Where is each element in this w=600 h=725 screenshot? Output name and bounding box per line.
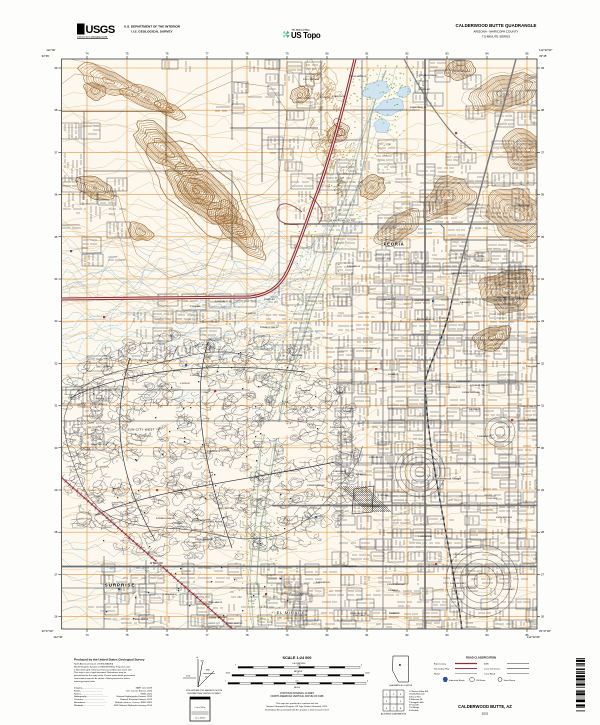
svg-text:84: 84 bbox=[485, 633, 489, 637]
svg-text:W SWEETWATER AVE: W SWEETWATER AVE bbox=[139, 359, 157, 362]
svg-text:W BELL RD: W BELL RD bbox=[150, 562, 163, 565]
svg-text:81: 81 bbox=[365, 52, 369, 56]
svg-text:112°22'30": 112°22'30" bbox=[527, 635, 540, 639]
svg-text:N 134TH DR: N 134TH DR bbox=[521, 474, 531, 476]
svg-text:Roads.........................: Roads...................................… bbox=[74, 690, 103, 692]
svg-text:This map was produced to confo: This map was produced to conform with th… bbox=[276, 702, 319, 705]
svg-text:74: 74 bbox=[85, 633, 89, 637]
svg-text:78: 78 bbox=[245, 52, 249, 56]
svg-text:W HILLCREST BLVD: W HILLCREST BLVD bbox=[451, 273, 468, 275]
svg-text:112°30': 112°30' bbox=[46, 48, 56, 52]
svg-text:W GREENWAY RD: W GREENWAY RD bbox=[446, 386, 461, 389]
svg-text:SCALE 1:24 000: SCALE 1:24 000 bbox=[283, 656, 312, 660]
svg-text:N 134TH DR: N 134TH DR bbox=[466, 588, 476, 590]
svg-text:W SWEETWATER AVE: W SWEETWATER AVE bbox=[209, 616, 227, 619]
svg-text:Ramp: Ramp bbox=[434, 674, 441, 676]
svg-text:W SHAW DR: W SHAW DR bbox=[388, 589, 399, 592]
svg-text:76: 76 bbox=[165, 52, 169, 56]
svg-text:QUADRANGLE LOCATION: QUADRANGLE LOCATION bbox=[389, 684, 413, 687]
svg-text:38: 38 bbox=[541, 108, 545, 112]
svg-text:36: 36 bbox=[54, 193, 58, 197]
svg-text:US Topo: US Topo bbox=[291, 31, 321, 40]
svg-text:1 000-meter grid: Universal Tr: 1 000-meter grid: Universal Transverse M… bbox=[74, 668, 132, 671]
svg-text:8 Glendale: 8 Glendale bbox=[409, 710, 420, 712]
svg-text:85: 85 bbox=[525, 52, 529, 56]
svg-text:ADJOINING QUADRANGLES: ADJOINING QUADRANGLES bbox=[381, 713, 407, 716]
svg-text:78: 78 bbox=[245, 633, 249, 637]
svg-text:W PEAK VIEW RD: W PEAK VIEW RD bbox=[456, 380, 471, 383]
svg-text:W WILLIAMS RD: W WILLIAMS RD bbox=[135, 618, 149, 621]
svg-text:USGS: USGS bbox=[86, 24, 115, 36]
svg-text:N 135TH AVE: N 135TH AVE bbox=[190, 305, 201, 308]
svg-text:science for a changing world: science for a changing world bbox=[77, 36, 108, 38]
svg-text:Local Road: Local Road bbox=[484, 674, 496, 676]
svg-text:79: 79 bbox=[285, 633, 289, 637]
svg-text:GNIS, 2021: GNIS, 2021 bbox=[141, 693, 153, 695]
svg-text:32: 32 bbox=[541, 361, 545, 365]
svg-text:N PARKVIEW LN: N PARKVIEW LN bbox=[332, 95, 346, 98]
svg-text:W SWEETWATER AVE: W SWEETWATER AVE bbox=[307, 484, 325, 487]
svg-text:W GREENWAY RD: W GREENWAY RD bbox=[342, 565, 357, 568]
svg-text:N PARKVIEW LN: N PARKVIEW LN bbox=[207, 450, 221, 453]
svg-text:Wetlands......................: Wetlands................................… bbox=[74, 704, 105, 707]
svg-text:FWS National Wetlands Inventor: FWS National Wetlands Inventory 2014 bbox=[114, 704, 153, 707]
svg-text:37: 37 bbox=[54, 150, 58, 154]
svg-text:83: 83 bbox=[445, 633, 449, 637]
svg-text:W MEEKER BLVD: W MEEKER BLVD bbox=[316, 582, 331, 584]
svg-text:Imagery.......................: Imagery.................................… bbox=[74, 687, 104, 690]
svg-text:31: 31 bbox=[54, 404, 58, 408]
svg-text:1 Pleasant Valley SW: 1 Pleasant Valley SW bbox=[409, 690, 428, 693]
svg-text:NORTH AMERICAN VERTICAL DATUM: NORTH AMERICAN VERTICAL DATUM OF 1988 bbox=[271, 695, 324, 698]
svg-text:7.5-MINUTE SERIES: 7.5-MINUTE SERIES bbox=[482, 35, 511, 39]
svg-text:NAIP, June 2019: NAIP, June 2019 bbox=[136, 687, 153, 690]
svg-text:75: 75 bbox=[125, 52, 129, 56]
svg-text:83: 83 bbox=[445, 52, 449, 56]
svg-text:W ROSE GARDEN LN: W ROSE GARDEN LN bbox=[363, 347, 381, 350]
svg-text:N 134TH DR: N 134TH DR bbox=[180, 383, 190, 385]
svg-text:W PINNACLE PEAK RD: W PINNACLE PEAK RD bbox=[156, 517, 175, 520]
svg-text:74: 74 bbox=[85, 52, 89, 56]
svg-text:N 134TH DR: N 134TH DR bbox=[190, 375, 200, 377]
svg-text:N 134TH DR: N 134TH DR bbox=[439, 318, 449, 320]
svg-text:W WILLIAMS RD: W WILLIAMS RD bbox=[497, 296, 511, 299]
svg-text:W PINNACLE PEAK RD: W PINNACLE PEAK RD bbox=[518, 405, 537, 408]
svg-text:Contours......................: Contours................................… bbox=[74, 698, 105, 701]
svg-text:Expressway: Expressway bbox=[434, 663, 447, 666]
svg-text:CALDERWOOD BUTTE, AZ: CALDERWOOD BUTTE, AZ bbox=[458, 704, 512, 709]
svg-text:entering private lands.: entering private lands. bbox=[74, 680, 96, 683]
svg-text:US Route: US Route bbox=[476, 679, 486, 682]
svg-text:U.S. DEPARTMENT OF THE INTERIO: U.S. DEPARTMENT OF THE INTERIOR bbox=[124, 24, 181, 28]
svg-text:ARIZONA - MARICOPA COUNTY: ARIZONA - MARICOPA COUNTY bbox=[474, 29, 519, 33]
svg-text:W CHOLLA ST: W CHOLLA ST bbox=[503, 588, 514, 591]
svg-text:U.S. Census Bureau, 2016: U.S. Census Bureau, 2016 bbox=[126, 689, 153, 692]
svg-text:29: 29 bbox=[54, 488, 58, 492]
svg-text:W PEAK VIEW RD: W PEAK VIEW RD bbox=[289, 594, 304, 597]
svg-text:30: 30 bbox=[54, 446, 58, 450]
svg-text:North American Datum of 1983 (: North American Datum of 1983 (NAD83) bbox=[74, 663, 113, 666]
svg-text:75: 75 bbox=[125, 633, 129, 637]
svg-text:2021: 2021 bbox=[482, 712, 489, 716]
svg-text:35: 35 bbox=[54, 235, 58, 239]
svg-text:W CHOLLA ST: W CHOLLA ST bbox=[264, 298, 275, 301]
svg-text:W ROSE GARDEN LN: W ROSE GARDEN LN bbox=[453, 553, 471, 556]
svg-text:PEORIA: PEORIA bbox=[384, 242, 405, 247]
svg-text:77: 77 bbox=[205, 633, 209, 637]
svg-text:N 135TH AVE: N 135TH AVE bbox=[378, 494, 389, 497]
svg-text:27: 27 bbox=[541, 572, 545, 576]
svg-text:W SWEETWATER AVE: W SWEETWATER AVE bbox=[387, 583, 405, 586]
svg-text:W GREENWAY RD: W GREENWAY RD bbox=[477, 435, 492, 438]
svg-text:82: 82 bbox=[405, 52, 409, 56]
svg-text:84: 84 bbox=[485, 52, 489, 56]
svg-text:39: 39 bbox=[541, 66, 545, 70]
svg-text:N 134TH DR: N 134TH DR bbox=[172, 523, 182, 525]
svg-text:W SWEETWATER AVE: W SWEETWATER AVE bbox=[412, 299, 430, 302]
svg-text:112°30': 112°30' bbox=[54, 635, 64, 639]
svg-text:Secondary Hwy: Secondary Hwy bbox=[434, 668, 450, 671]
svg-text:Hydrography...................: Hydrography.............................… bbox=[74, 695, 109, 698]
svg-text:National Geospatial Program US: National Geospatial Program US Topo Prod… bbox=[266, 705, 328, 708]
svg-text:76: 76 bbox=[165, 633, 169, 637]
svg-text:ROAD CLASSIFICATION: ROAD CLASSIFICATION bbox=[466, 656, 496, 660]
svg-text:38: 38 bbox=[54, 108, 58, 112]
svg-text:Westbrook Village: Westbrook Village bbox=[437, 477, 461, 481]
svg-text:W HILLCREST BLVD: W HILLCREST BLVD bbox=[303, 79, 320, 81]
svg-text:N 134TH DR: N 134TH DR bbox=[528, 419, 538, 421]
svg-text:2 Baldy Mountain: 2 Baldy Mountain bbox=[409, 693, 424, 696]
svg-text:4WD: 4WD bbox=[484, 664, 489, 666]
svg-text:National Hydrography Dataset,: National Hydrography Dataset, 2013 bbox=[117, 695, 153, 698]
svg-text:4 Wittmann SE: 4 Wittmann SE bbox=[409, 698, 423, 701]
svg-text:A metadata file associated wit: A metadata file associated with this pro… bbox=[265, 709, 329, 712]
svg-text:33°45': 33°45' bbox=[539, 54, 547, 58]
svg-text:W ROSE GARDEN LN: W ROSE GARDEN LN bbox=[195, 538, 213, 541]
svg-text:W CHOLLA ST: W CHOLLA ST bbox=[429, 379, 440, 382]
svg-text:1 in = 2000 ft: 1 in = 2000 ft bbox=[195, 717, 206, 720]
svg-text:W HILLCREST BLVD: W HILLCREST BLVD bbox=[91, 444, 108, 446]
svg-text:W DEER VALLEY DR: W DEER VALLEY DR bbox=[226, 622, 243, 625]
svg-text:1 cm = 240 m: 1 cm = 240 m bbox=[195, 707, 206, 709]
svg-text:77: 77 bbox=[205, 52, 209, 56]
svg-text:GN: GN bbox=[201, 661, 205, 663]
svg-text:CALDERWOOD BUTTE QUADRANGLE: CALDERWOOD BUTTE QUADRANGLE bbox=[456, 23, 537, 28]
svg-text:Lizard Acres: Lizard Acres bbox=[206, 520, 223, 524]
svg-text:W SHAW DR: W SHAW DR bbox=[384, 298, 395, 301]
svg-text:MILES: MILES bbox=[294, 687, 301, 689]
svg-text:W DEER VALLEY DR: W DEER VALLEY DR bbox=[410, 106, 427, 109]
svg-text:11°: 11° bbox=[205, 677, 208, 679]
svg-text:33: 33 bbox=[541, 319, 545, 323]
svg-text:★: ★ bbox=[196, 656, 198, 659]
svg-text:N 134TH DR: N 134TH DR bbox=[246, 313, 256, 315]
svg-text:W HAPPY VALLEY RD: W HAPPY VALLEY RD bbox=[330, 220, 355, 223]
svg-text:W SWEETWATER AVE: W SWEETWATER AVE bbox=[462, 391, 480, 394]
svg-text:W ROSE GARDEN LN: W ROSE GARDEN LN bbox=[349, 75, 367, 78]
svg-text:80: 80 bbox=[325, 633, 329, 637]
svg-text:W HILLCREST BLVD: W HILLCREST BLVD bbox=[218, 508, 235, 510]
svg-text:SUN CITY WEST: SUN CITY WEST bbox=[127, 428, 154, 432]
svg-text:35: 35 bbox=[541, 235, 545, 239]
svg-text:81: 81 bbox=[365, 633, 369, 637]
svg-text:Names.........................: Names...................................… bbox=[74, 693, 103, 695]
svg-text:32: 32 bbox=[54, 361, 58, 365]
svg-text:3 Biscuit Flat: 3 Biscuit Flat bbox=[409, 695, 421, 698]
svg-text:World Geodetic System of 1984: World Geodetic System of 1984 (WGS84). P… bbox=[74, 665, 131, 668]
svg-text:Multiple sources; Census, IBWC: Multiple sources; Census, IBWC 2020 bbox=[115, 701, 153, 704]
svg-text:W PINNACLE PEAK RD: W PINNACLE PEAK RD bbox=[419, 74, 438, 77]
svg-text:34: 34 bbox=[54, 277, 58, 281]
svg-text:N PARKVIEW LN: N PARKVIEW LN bbox=[333, 470, 347, 473]
svg-text:33°45': 33°45' bbox=[42, 54, 50, 58]
svg-text:U.S. GEOLOGICAL SURVEY: U.S. GEOLOGICAL SURVEY bbox=[131, 30, 173, 34]
svg-text:37: 37 bbox=[541, 150, 545, 154]
svg-text:26: 26 bbox=[541, 615, 545, 619]
svg-text:UTM GRID AND 2021 MAGNETIC NOR: UTM GRID AND 2021 MAGNETIC NORTH bbox=[186, 689, 223, 692]
svg-text:W ROSE GARDEN LN: W ROSE GARDEN LN bbox=[453, 70, 471, 73]
svg-text:W CHOLLA ST: W CHOLLA ST bbox=[486, 497, 497, 500]
svg-text:Boundaries....................: Boundaries..............................… bbox=[74, 701, 107, 704]
svg-text:N 135TH AVE: N 135TH AVE bbox=[292, 354, 303, 357]
svg-text:80: 80 bbox=[325, 52, 329, 56]
svg-text:34: 34 bbox=[541, 277, 545, 281]
svg-text:Local Connector: Local Connector bbox=[484, 668, 500, 671]
svg-text:0°21': 0°21' bbox=[186, 676, 192, 678]
svg-text:33°37'30": 33°37'30" bbox=[539, 629, 551, 633]
svg-text:DECLINATION AT CENTER OF SHEET: DECLINATION AT CENTER OF SHEET bbox=[187, 692, 221, 695]
svg-text:W WILLIAMS RD: W WILLIAMS RD bbox=[209, 601, 223, 604]
svg-text:30: 30 bbox=[541, 446, 545, 450]
svg-text:MN: MN bbox=[206, 670, 210, 672]
svg-text:33: 33 bbox=[54, 319, 58, 323]
svg-text:This map is not a legal docume: This map is not a legal document. Bounda… bbox=[74, 671, 127, 674]
svg-text:W ACOMA DR: W ACOMA DR bbox=[469, 408, 481, 411]
svg-text:EL MIRAGE: EL MIRAGE bbox=[277, 610, 306, 615]
svg-text:39: 39 bbox=[54, 66, 58, 70]
svg-text:W ROSE GARDEN LN: W ROSE GARDEN LN bbox=[417, 318, 435, 321]
svg-text:W WILLIAMS RD: W WILLIAMS RD bbox=[347, 265, 361, 268]
svg-text:W SHAW DR: W SHAW DR bbox=[389, 612, 400, 615]
svg-text:6 Perryville: 6 Perryville bbox=[409, 705, 420, 707]
svg-text:W DEER VALLEY DR: W DEER VALLEY DR bbox=[215, 300, 232, 303]
svg-text:KILOMETERS: KILOMETERS bbox=[293, 663, 307, 665]
svg-text:W MEEKER BLVD: W MEEKER BLVD bbox=[450, 583, 465, 585]
svg-text:28: 28 bbox=[54, 530, 58, 534]
svg-text:W MEEKER BLVD: W MEEKER BLVD bbox=[369, 457, 384, 459]
svg-text:26: 26 bbox=[54, 615, 58, 619]
svg-text:Interstate Route: Interstate Route bbox=[449, 679, 465, 682]
svg-text:W VIA MONTOYA: W VIA MONTOYA bbox=[515, 297, 529, 300]
svg-text:112°22'30": 112°22'30" bbox=[539, 48, 552, 52]
svg-text:Produced by the United States: Produced by the United States Geological… bbox=[74, 658, 145, 662]
svg-text:W ROSE GARDEN LN: W ROSE GARDEN LN bbox=[90, 403, 108, 406]
svg-text:5 Hedgpeth Hills: 5 Hedgpeth Hills bbox=[409, 701, 424, 704]
svg-text:W PINNACLE PEAK RD: W PINNACLE PEAK RD bbox=[260, 326, 279, 329]
svg-text:W PEAK VIEW RD: W PEAK VIEW RD bbox=[140, 342, 155, 345]
svg-text:W MEEKER BLVD: W MEEKER BLVD bbox=[418, 536, 433, 538]
svg-text:generalized for this map scale: generalized for this map scale. Private … bbox=[74, 674, 136, 677]
svg-text:W HILLCREST BLVD: W HILLCREST BLVD bbox=[496, 517, 513, 519]
svg-text:36: 36 bbox=[541, 193, 545, 197]
svg-text:31: 31 bbox=[541, 404, 545, 408]
svg-text:W SHAW DR: W SHAW DR bbox=[356, 473, 367, 476]
svg-text:33°37'30": 33°37'30" bbox=[42, 629, 54, 633]
svg-text:W DEER VALLEY DR: W DEER VALLEY DR bbox=[350, 612, 367, 615]
svg-text:METERS: METERS bbox=[294, 671, 303, 673]
svg-text:W ACOMA DR: W ACOMA DR bbox=[460, 301, 472, 304]
svg-text:W MEEKER BLVD: W MEEKER BLVD bbox=[163, 594, 178, 596]
svg-text:W SHAW DR: W SHAW DR bbox=[388, 373, 399, 376]
svg-text:79: 79 bbox=[285, 52, 289, 56]
svg-text:27: 27 bbox=[54, 572, 58, 576]
svg-text:7 El Mirage: 7 El Mirage bbox=[409, 707, 420, 709]
svg-text:W CHOLLA ST: W CHOLLA ST bbox=[419, 88, 430, 91]
svg-text:82: 82 bbox=[405, 633, 409, 637]
svg-text:28: 28 bbox=[541, 530, 545, 534]
svg-text:W GREENWAY RD: W GREENWAY RD bbox=[330, 426, 345, 429]
svg-text:N 134TH DR: N 134TH DR bbox=[320, 97, 330, 99]
svg-text:National Elevation Dataset, 20: National Elevation Dataset, 2013 bbox=[120, 698, 153, 701]
svg-text:State Route: State Route bbox=[504, 679, 516, 682]
svg-text:29: 29 bbox=[541, 488, 545, 492]
svg-text:SURPRISE: SURPRISE bbox=[105, 583, 136, 588]
svg-text:reservations may not be shown.: reservations may not be shown. Obtain pe… bbox=[74, 677, 131, 680]
svg-text:W PINNACLE PEAK RD: W PINNACLE PEAK RD bbox=[470, 384, 489, 387]
